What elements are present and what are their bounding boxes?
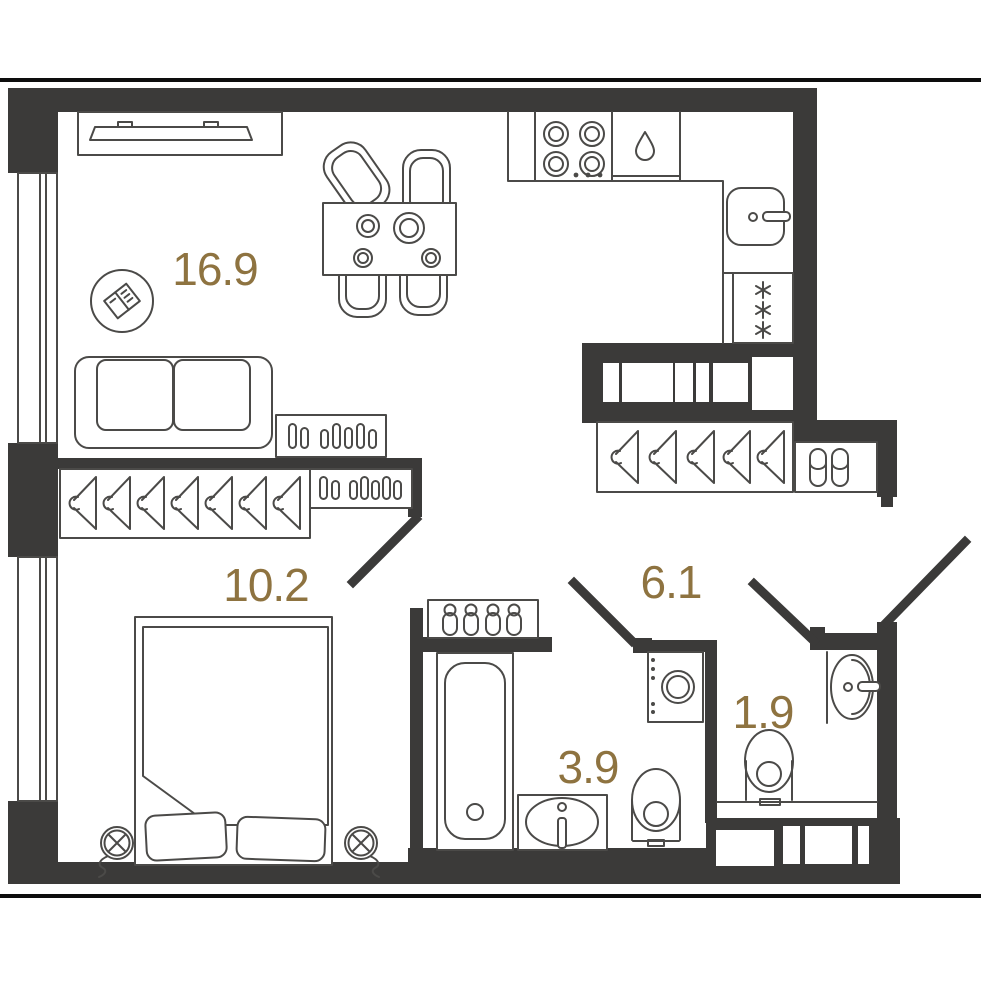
bathtub-icon bbox=[437, 653, 513, 850]
kitchen-sink-icon bbox=[727, 188, 790, 245]
wc-sink-icon bbox=[831, 655, 880, 719]
pillow-icon bbox=[236, 816, 325, 861]
bottom-frame-line bbox=[0, 894, 981, 898]
room-label-bathroom: 3.9 bbox=[558, 741, 619, 793]
hall-coat-rack bbox=[597, 422, 793, 492]
radiator-living bbox=[276, 415, 386, 457]
washbasin-icon bbox=[518, 795, 607, 850]
dishwasher-drop-icon bbox=[612, 112, 680, 181]
dining-set bbox=[317, 135, 456, 317]
slippers-icon bbox=[795, 442, 877, 492]
wc-toilet-icon bbox=[745, 730, 793, 805]
vent-shafts bbox=[716, 826, 869, 866]
room-label-bedroom: 10.2 bbox=[223, 559, 309, 611]
decor-book-icon bbox=[91, 270, 153, 332]
door-leaf-entrance bbox=[886, 542, 965, 623]
floor-plan: 16.9 10.2 6.1 3.9 1.9 bbox=[0, 0, 981, 981]
bed-icon bbox=[135, 617, 332, 865]
toilet-bathroom-icon bbox=[632, 769, 680, 846]
towel-hooks-icon bbox=[428, 600, 538, 638]
window-living bbox=[18, 173, 57, 443]
door-leaf-bedroom bbox=[353, 519, 416, 582]
sofa-icon bbox=[75, 357, 272, 448]
door-leaf-wc bbox=[754, 584, 814, 641]
door-leaf-bathroom bbox=[574, 583, 632, 641]
stove-icon bbox=[535, 112, 612, 181]
top-frame-line bbox=[0, 78, 981, 82]
pillow-icon bbox=[145, 812, 227, 861]
window-bedroom bbox=[18, 557, 57, 801]
room-label-hallway: 6.1 bbox=[641, 556, 702, 608]
washing-machine-icon bbox=[648, 652, 703, 722]
room-label-living-kitchen: 16.9 bbox=[172, 243, 258, 295]
floor-plan-page: 16.9 10.2 6.1 3.9 1.9 bbox=[0, 0, 981, 981]
room-label-wc: 1.9 bbox=[733, 686, 794, 738]
tv-unit bbox=[78, 112, 282, 155]
bedroom-wardrobe-hangers bbox=[60, 469, 310, 538]
radiator-bedroom bbox=[310, 469, 412, 508]
fridge-snowflakes-icon bbox=[733, 273, 793, 343]
